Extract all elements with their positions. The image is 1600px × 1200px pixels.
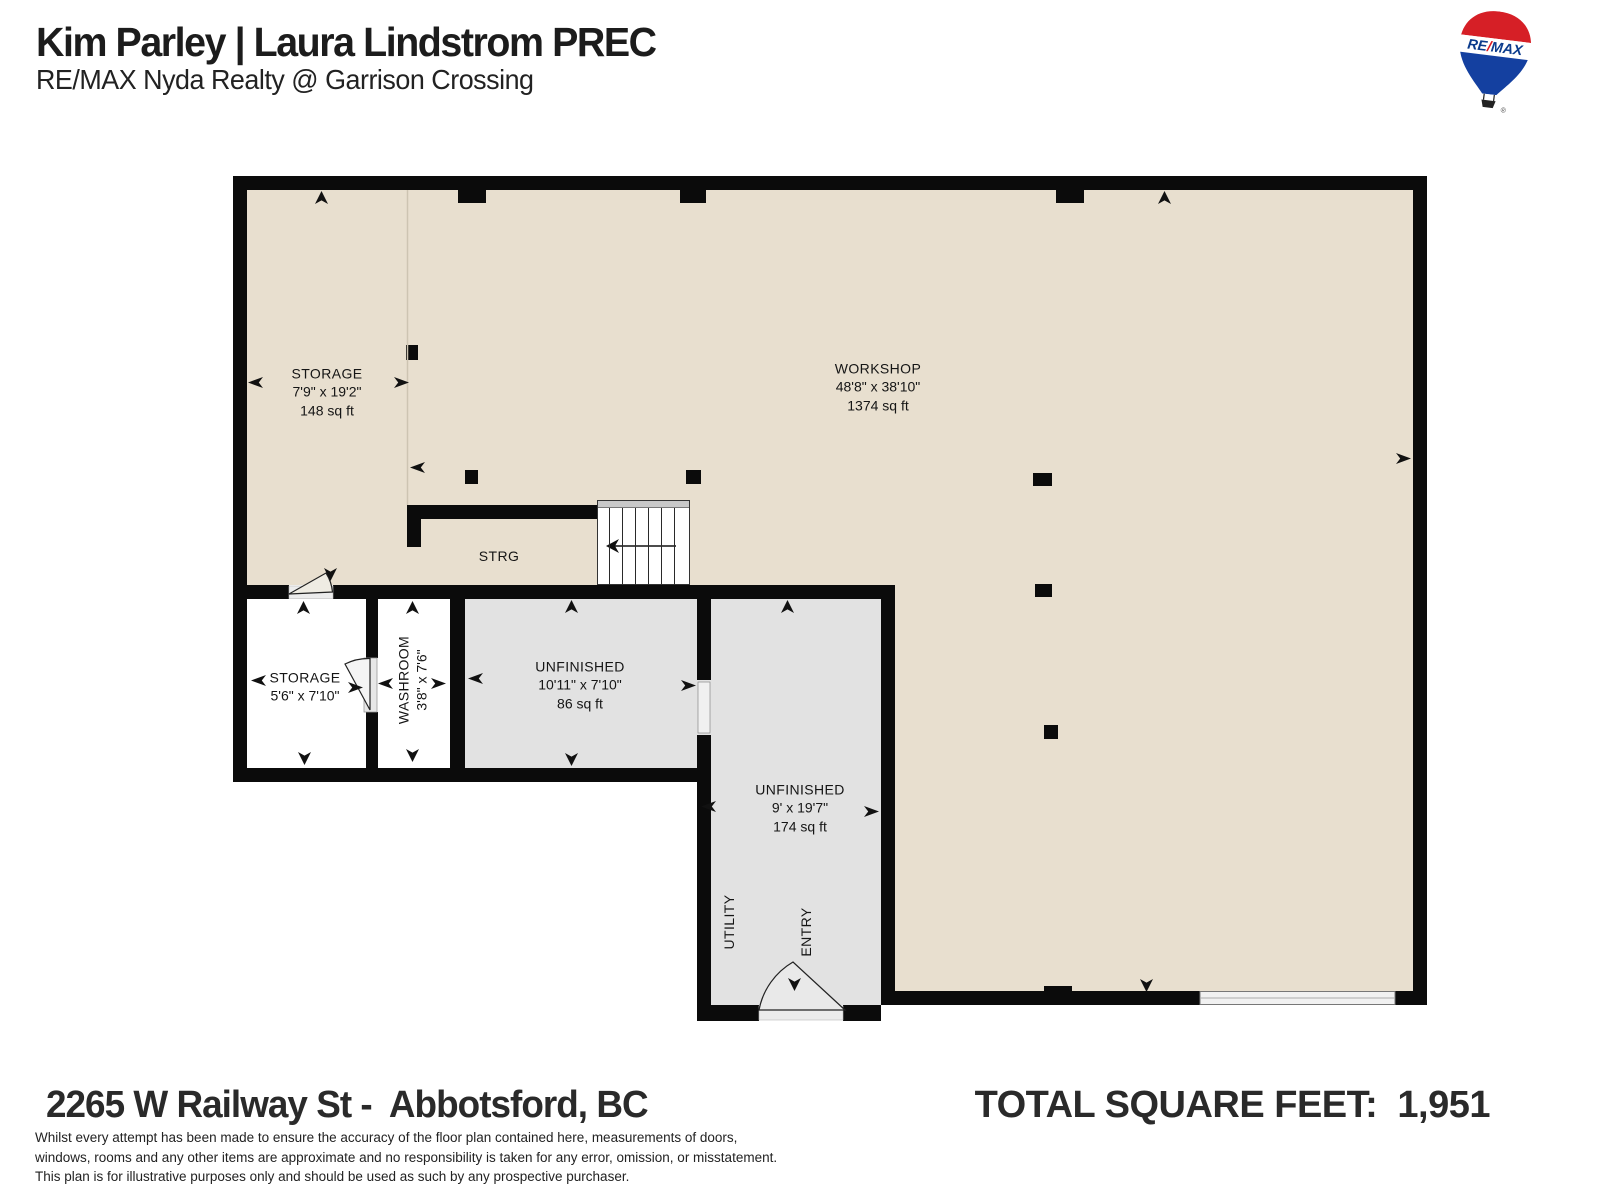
wall [233, 176, 1427, 190]
wall [1395, 991, 1427, 1005]
column-post [1044, 725, 1058, 739]
stair-tread [661, 508, 662, 585]
property-address: 2265 W Railway St - Abbotsford, BC [46, 1084, 648, 1127]
room-label-unfinished-large: UNFINISHED 9' x 19'7" 174 sq ft [755, 780, 845, 835]
room-label-entry: ENTRY [797, 907, 815, 956]
wall [366, 712, 378, 768]
column-post [1056, 182, 1084, 203]
room-label-unfinished-small: UNFINISHED 10'11" x 7'10" 86 sq ft [535, 657, 625, 712]
wall [333, 585, 895, 599]
stair-tread [648, 508, 649, 585]
wall [697, 735, 711, 1019]
disclaimer-text: Whilst every attempt has been made to en… [35, 1128, 777, 1187]
column-post [406, 345, 418, 360]
floor-plan: STORAGE 7'9" x 19'2" 148 sq ft WORKSHOP … [0, 0, 1600, 1200]
wall [843, 1005, 881, 1021]
column-post [465, 470, 478, 484]
total-square-feet-value: 1,951 [1387, 1084, 1490, 1126]
stairs [597, 500, 690, 585]
room-label-storage-lower: STORAGE 5'6" x 7'10" [269, 669, 340, 706]
floor-plan-page: Kim Parley | Laura Lindstrom PREC RE/MAX… [0, 0, 1600, 1200]
column-post [1033, 473, 1052, 486]
column-post [1035, 584, 1052, 597]
stair-tread [635, 508, 636, 585]
total-square-feet: TOTAL SQUARE FEET: 1,951 [975, 1084, 1490, 1127]
column-post [680, 182, 706, 203]
wall [407, 505, 421, 547]
wall [233, 768, 711, 782]
wall [407, 505, 597, 519]
wall [881, 991, 1200, 1005]
wall [1413, 176, 1427, 1005]
window [1200, 992, 1395, 1005]
column-post [686, 470, 701, 484]
column-post [1044, 986, 1072, 1005]
finished-floor-area [247, 190, 1413, 585]
room-label-storage-upper: STORAGE 7'9" x 19'2" 148 sq ft [291, 364, 362, 419]
room-label-utility: UTILITY [720, 895, 738, 950]
wall [697, 1005, 759, 1021]
column-post [458, 182, 486, 203]
room-label-strg: STRG [479, 547, 520, 565]
stairs-top-edge [598, 501, 689, 508]
total-square-feet-label: TOTAL SQUARE FEET: [975, 1084, 1388, 1126]
stair-tread [622, 508, 623, 585]
stair-tread [609, 508, 610, 585]
wall [450, 599, 465, 768]
room-label-workshop: WORKSHOP 48'8" x 38'10" 1374 sq ft [835, 359, 921, 414]
room-label-washroom: WASHROOM 3'8" x 7'6" [395, 636, 432, 724]
workshop-floor-area [895, 585, 1413, 991]
wall [233, 585, 289, 599]
wall [366, 599, 378, 658]
door-opening-unfinished [697, 680, 711, 735]
wall [233, 176, 247, 782]
wall [697, 599, 711, 680]
stair-tread [674, 508, 675, 585]
wall [881, 599, 895, 991]
